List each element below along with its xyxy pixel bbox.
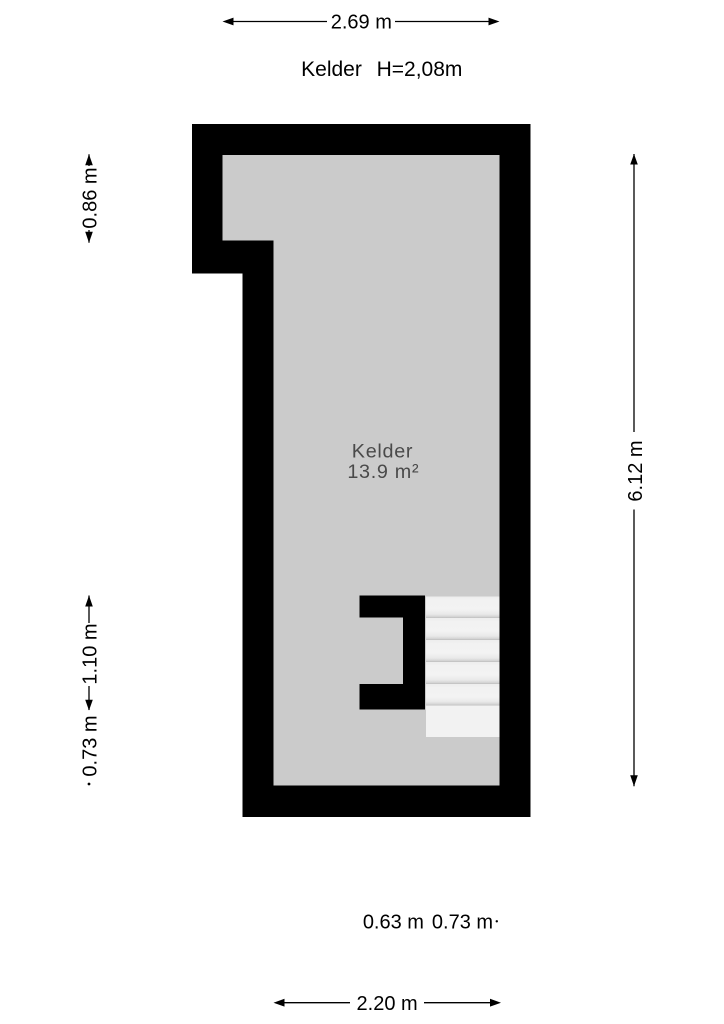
svg-text:H=2,08m: H=2,08m: [377, 58, 463, 81]
svg-text:0.73 m: 0.73 m: [432, 912, 493, 934]
svg-text:0.63 m: 0.63 m: [363, 912, 424, 934]
svg-text:0.73 m: 0.73 m: [79, 715, 101, 776]
svg-text:2.20 m: 2.20 m: [357, 993, 418, 1015]
svg-text:2.69 m: 2.69 m: [331, 12, 392, 34]
svg-text:6.12 m: 6.12 m: [625, 440, 647, 501]
svg-text:Kelder: Kelder: [301, 58, 362, 81]
svg-text:Kelder: Kelder: [352, 441, 413, 463]
svg-text:13.9 m²: 13.9 m²: [347, 461, 419, 483]
svg-text:1.10 m: 1.10 m: [79, 623, 101, 684]
svg-text:0.86 m: 0.86 m: [79, 167, 101, 228]
